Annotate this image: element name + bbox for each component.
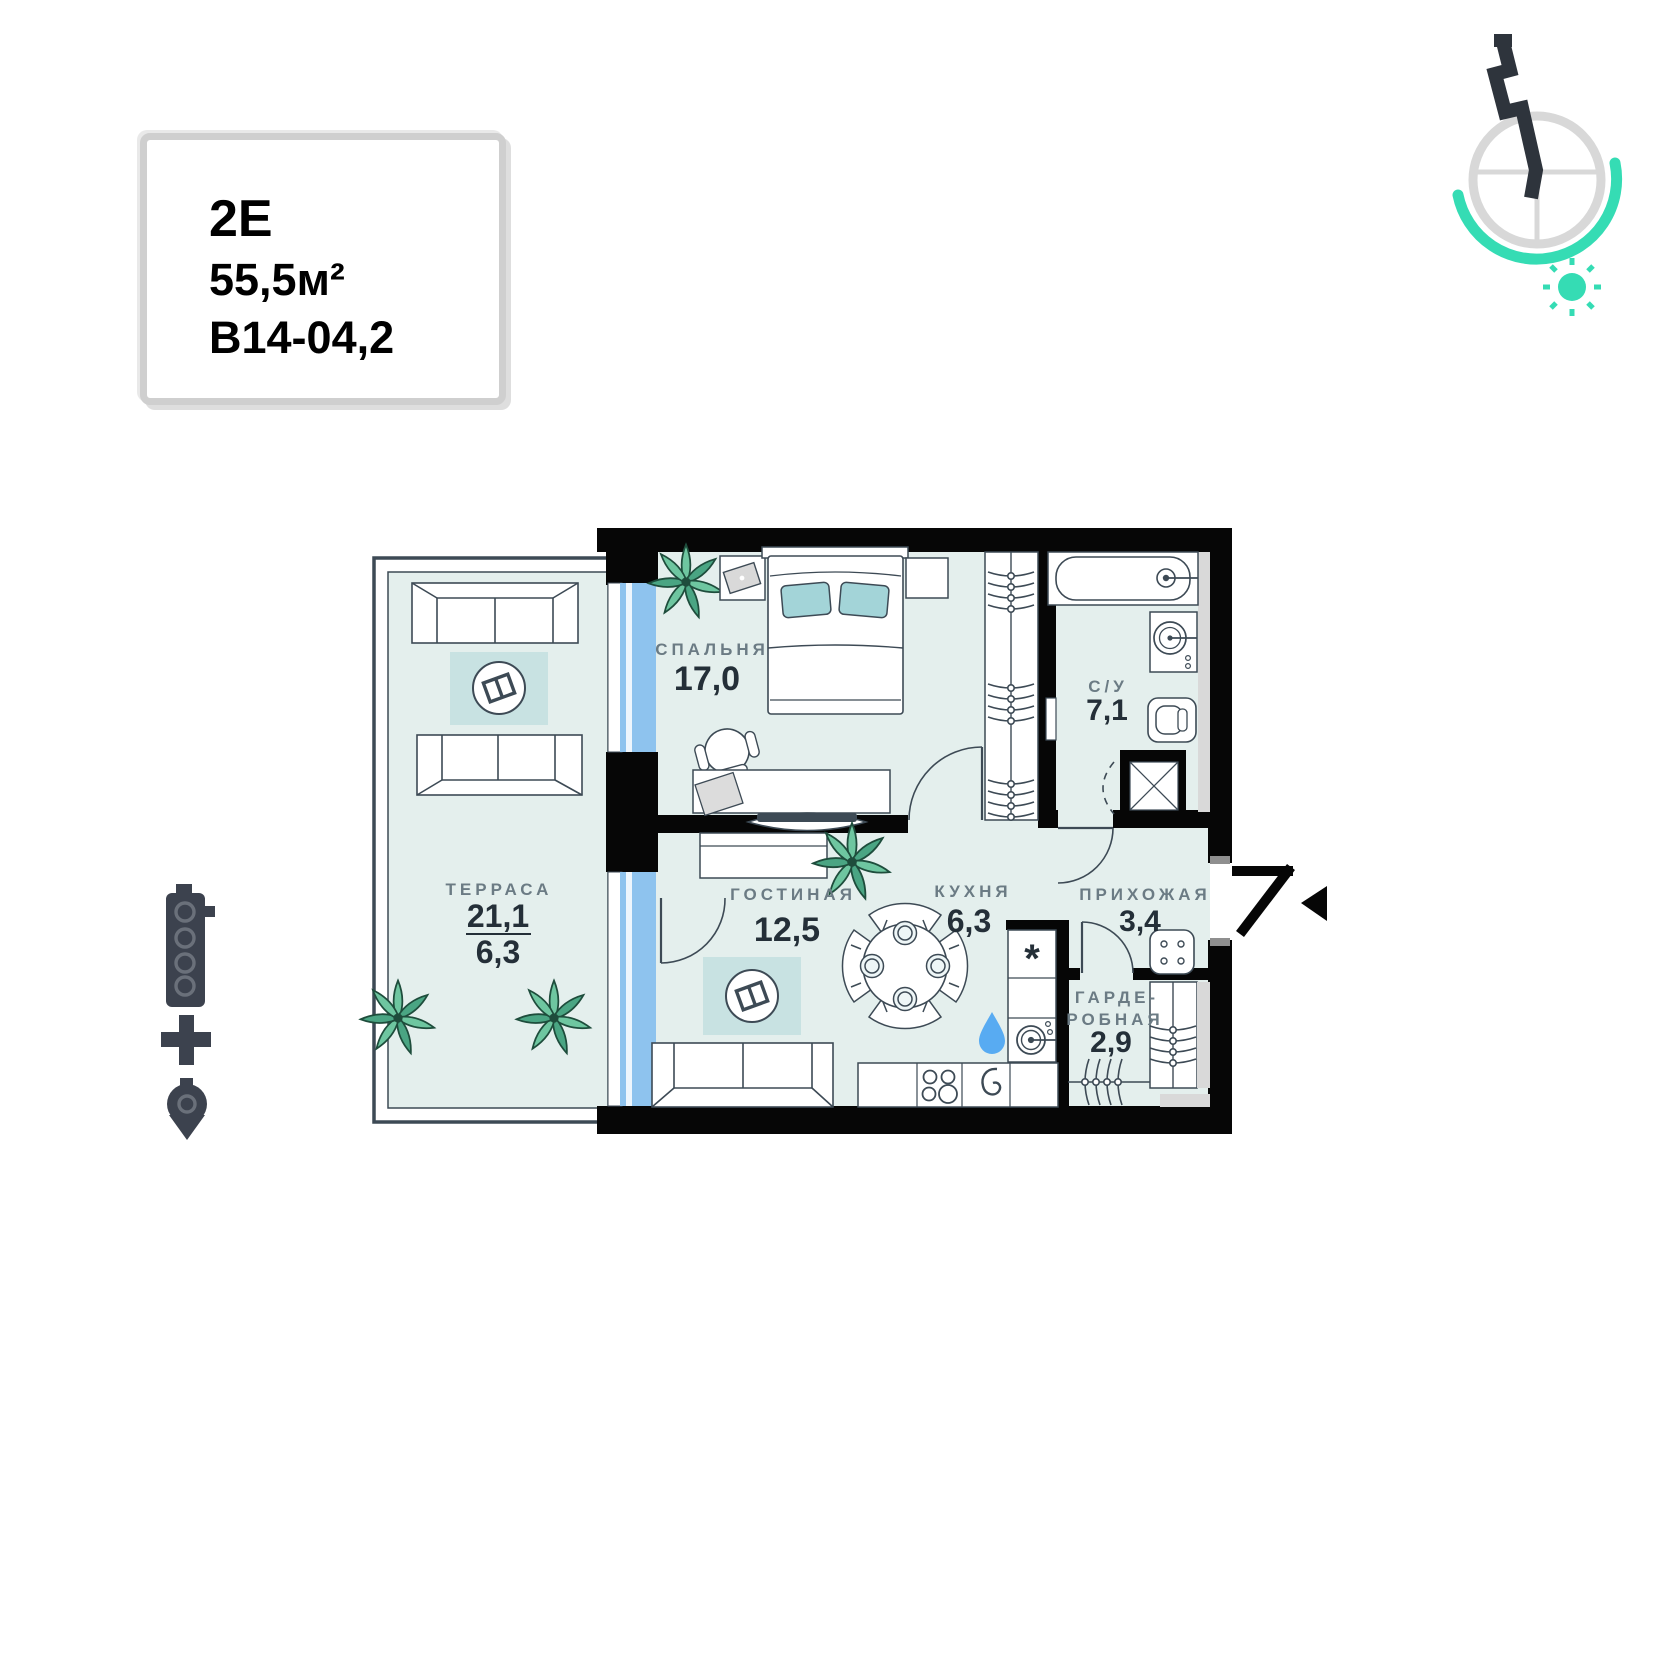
tv-console bbox=[700, 833, 827, 878]
vent-shaft bbox=[1130, 762, 1178, 810]
door-frame-mark bbox=[1210, 938, 1230, 946]
shaft-strip bbox=[1197, 982, 1210, 1088]
shaft-strip bbox=[1198, 552, 1210, 812]
plus-icon bbox=[161, 1015, 211, 1065]
window-living bbox=[608, 872, 656, 1106]
room-terrace bbox=[360, 558, 608, 1122]
washer-spot-mark: * bbox=[1024, 937, 1040, 981]
wardrobe-label-1: ГАРДЕ- bbox=[1075, 988, 1159, 1007]
bedroom-closet bbox=[985, 552, 1038, 820]
entrance-arrow-icon bbox=[1301, 886, 1327, 921]
threshold-strip bbox=[1160, 1094, 1210, 1107]
nightstand bbox=[906, 558, 948, 598]
terrace-area-reduced: 6,3 bbox=[476, 934, 520, 970]
floorplan-page: 2Е 55,5м² В14-04,2 bbox=[0, 0, 1667, 1667]
bed bbox=[762, 547, 908, 714]
left-icon-group bbox=[161, 884, 215, 1140]
living-label: ГОСТИНАЯ bbox=[730, 885, 856, 904]
location-pin-icon bbox=[167, 1078, 207, 1140]
laptop-table bbox=[720, 556, 765, 600]
hallway-label: ПРИХОЖАЯ bbox=[1079, 885, 1211, 904]
bathroom-area: 7,1 bbox=[1086, 694, 1128, 727]
compass-sun-logo bbox=[1458, 34, 1617, 316]
desk bbox=[693, 770, 890, 815]
bathtub bbox=[1048, 552, 1198, 605]
terrace-coffee-table bbox=[473, 662, 525, 714]
toilet bbox=[1148, 698, 1196, 742]
entrance-door bbox=[1232, 867, 1327, 934]
kitchen-label: КУХНЯ bbox=[934, 882, 1011, 901]
door-frame-mark bbox=[1210, 856, 1230, 864]
terrace-area-total: 21,1 bbox=[467, 898, 529, 934]
bedroom-area: 17,0 bbox=[674, 660, 740, 698]
hallway-area: 3,4 bbox=[1119, 905, 1161, 938]
floorplan-drawing: СПАЛЬНЯ 17,0 bbox=[0, 0, 1667, 1667]
window-bedroom bbox=[608, 583, 656, 752]
terrace-label: ТЕРРАСА bbox=[446, 880, 553, 899]
living-sofa bbox=[652, 1043, 833, 1107]
bathroom-sink bbox=[1150, 612, 1197, 672]
living-area: 12,5 bbox=[754, 911, 820, 949]
bedroom-label: СПАЛЬНЯ bbox=[655, 640, 769, 659]
terrace-sofa-top bbox=[412, 583, 578, 643]
wardrobe-area: 2,9 bbox=[1090, 1026, 1132, 1059]
living-coffee-table bbox=[726, 970, 778, 1022]
building-icon bbox=[166, 884, 215, 1007]
kitchen-area: 6,3 bbox=[947, 903, 991, 939]
door-leaf bbox=[1046, 698, 1056, 740]
sun-icon bbox=[1543, 258, 1601, 316]
terrace-sofa-bottom bbox=[417, 735, 582, 795]
utility-column: * bbox=[1008, 930, 1056, 1062]
kitchen-counter bbox=[858, 1063, 1058, 1107]
